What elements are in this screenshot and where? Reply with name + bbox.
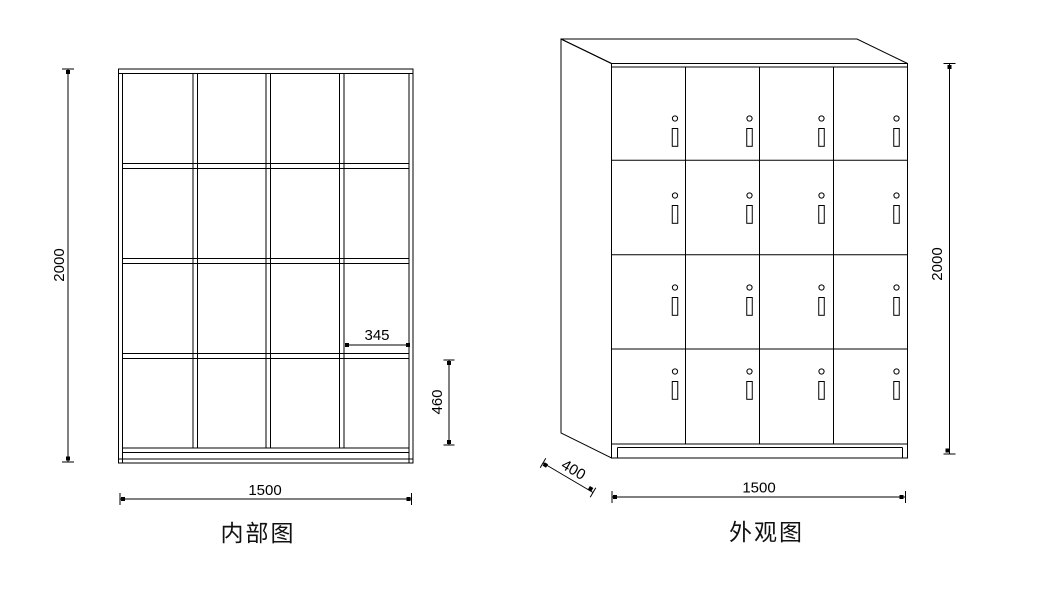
keyhole-icon bbox=[819, 193, 824, 198]
dim-end-dot bbox=[900, 495, 904, 499]
dim-end-dot bbox=[946, 449, 950, 453]
dim-label-width: 1500 bbox=[742, 480, 775, 497]
dim-end-dot bbox=[588, 486, 593, 491]
handle-slot-icon bbox=[819, 129, 825, 147]
partition-2 bbox=[266, 74, 271, 449]
locker-drawing: 2000 1500 345 460 内部图 bbox=[0, 0, 1051, 596]
locker-door bbox=[747, 285, 753, 315]
drawing-sheet: 2000 1500 345 460 内部图 bbox=[0, 0, 1051, 596]
dim-compartment-width: 345 bbox=[345, 327, 410, 347]
dim-label-compartment-height: 460 bbox=[429, 389, 446, 414]
locker-door bbox=[672, 193, 678, 223]
cabinet-top-face bbox=[561, 39, 908, 64]
handle-slot-icon bbox=[672, 206, 678, 224]
keyhole-icon bbox=[747, 193, 752, 198]
partition-1 bbox=[193, 74, 198, 449]
keyhole-icon bbox=[672, 116, 677, 121]
locker-door bbox=[747, 116, 753, 146]
handle-slot-icon bbox=[747, 129, 753, 147]
handle-slot-icon bbox=[819, 382, 825, 400]
dim-end-dot bbox=[121, 497, 125, 501]
dim-end-dot bbox=[447, 440, 451, 444]
dim-label-depth: 400 bbox=[558, 456, 588, 483]
locker-door bbox=[894, 285, 900, 315]
keyhole-icon bbox=[747, 369, 752, 374]
handle-slot-icon bbox=[672, 298, 678, 316]
dim-depth: 400 bbox=[540, 456, 596, 497]
dim-external-width: 1500 bbox=[612, 480, 906, 504]
dim-label-compartment-width: 345 bbox=[364, 327, 389, 344]
dim-end-dot bbox=[406, 343, 410, 347]
handle-slot-icon bbox=[672, 382, 678, 400]
handle-slot-icon bbox=[894, 129, 900, 147]
keyhole-icon bbox=[672, 193, 677, 198]
locker-door bbox=[894, 116, 900, 146]
dim-end-dot bbox=[407, 497, 411, 501]
dim-internal-width: 1500 bbox=[120, 482, 412, 505]
handle-slot-icon bbox=[747, 298, 753, 316]
dim-end-dot bbox=[66, 70, 70, 74]
locker-door bbox=[894, 193, 900, 223]
locker-door bbox=[819, 193, 825, 223]
external-view: 2000 1500 400 外观图 bbox=[540, 39, 955, 545]
dim-end-dot bbox=[948, 65, 952, 69]
dim-compartment-height: 460 bbox=[429, 360, 455, 445]
keyhole-icon bbox=[894, 193, 899, 198]
locker-door bbox=[672, 285, 678, 315]
dim-label-width: 1500 bbox=[248, 482, 281, 499]
external-view-title: 外观图 bbox=[729, 520, 804, 545]
locker-door bbox=[672, 369, 678, 399]
locker-door bbox=[894, 369, 900, 399]
keyhole-icon bbox=[894, 369, 899, 374]
dim-label-height: 2000 bbox=[929, 247, 946, 280]
locker-door bbox=[819, 285, 825, 315]
locker-door bbox=[672, 116, 678, 146]
keyhole-icon bbox=[672, 369, 677, 374]
handle-slot-icon bbox=[819, 206, 825, 224]
cabinet-base bbox=[618, 448, 903, 459]
keyhole-icon bbox=[672, 285, 677, 290]
handle-slot-icon bbox=[747, 382, 753, 400]
dim-end-dot bbox=[447, 361, 451, 365]
keyhole-icon bbox=[819, 116, 824, 121]
dim-internal-height: 2000 bbox=[51, 69, 74, 462]
handle-slot-icon bbox=[894, 298, 900, 316]
handle-slot-icon bbox=[894, 206, 900, 224]
cabinet-side-panel bbox=[561, 39, 612, 458]
internal-view: 2000 1500 345 460 内部图 bbox=[51, 69, 455, 546]
internal-view-title: 内部图 bbox=[221, 521, 296, 546]
keyhole-icon bbox=[819, 369, 824, 374]
shelf-4 bbox=[123, 448, 410, 453]
locker-door bbox=[747, 369, 753, 399]
handle-slot-icon bbox=[747, 206, 753, 224]
partition-3 bbox=[340, 74, 345, 449]
dim-label-height: 2000 bbox=[51, 248, 68, 281]
handle-slot-icon bbox=[672, 129, 678, 147]
locker-door bbox=[819, 369, 825, 399]
keyhole-icon bbox=[894, 285, 899, 290]
handle-slot-icon bbox=[894, 382, 900, 400]
dim-end-dot bbox=[613, 495, 617, 499]
locker-door bbox=[819, 116, 825, 146]
handle-slot-icon bbox=[819, 298, 825, 316]
keyhole-icon bbox=[894, 116, 899, 121]
keyhole-icon bbox=[747, 285, 752, 290]
keyhole-icon bbox=[819, 285, 824, 290]
keyhole-icon bbox=[747, 116, 752, 121]
dim-external-height: 2000 bbox=[929, 64, 956, 455]
dim-end-dot bbox=[66, 457, 70, 461]
locker-door bbox=[747, 193, 753, 223]
dim-end-dot bbox=[345, 343, 349, 347]
